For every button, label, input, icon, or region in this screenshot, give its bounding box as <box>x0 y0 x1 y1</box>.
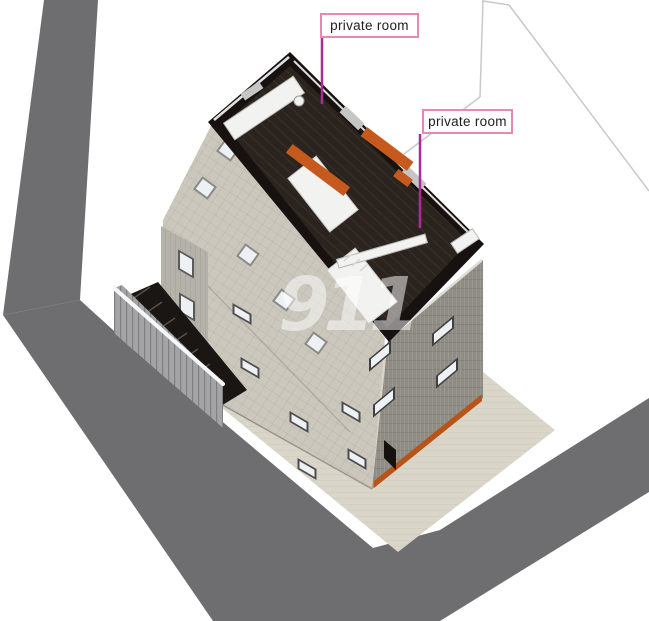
site-axonometric-drawing <box>0 0 649 621</box>
private-room-label-1: private room <box>320 13 419 38</box>
small-table <box>294 96 304 106</box>
private-room-label-2: private room <box>422 109 513 134</box>
architectural-render: 911 private room private room <box>0 0 649 621</box>
site-boundary-lines <box>404 0 649 191</box>
road-left <box>3 0 98 315</box>
